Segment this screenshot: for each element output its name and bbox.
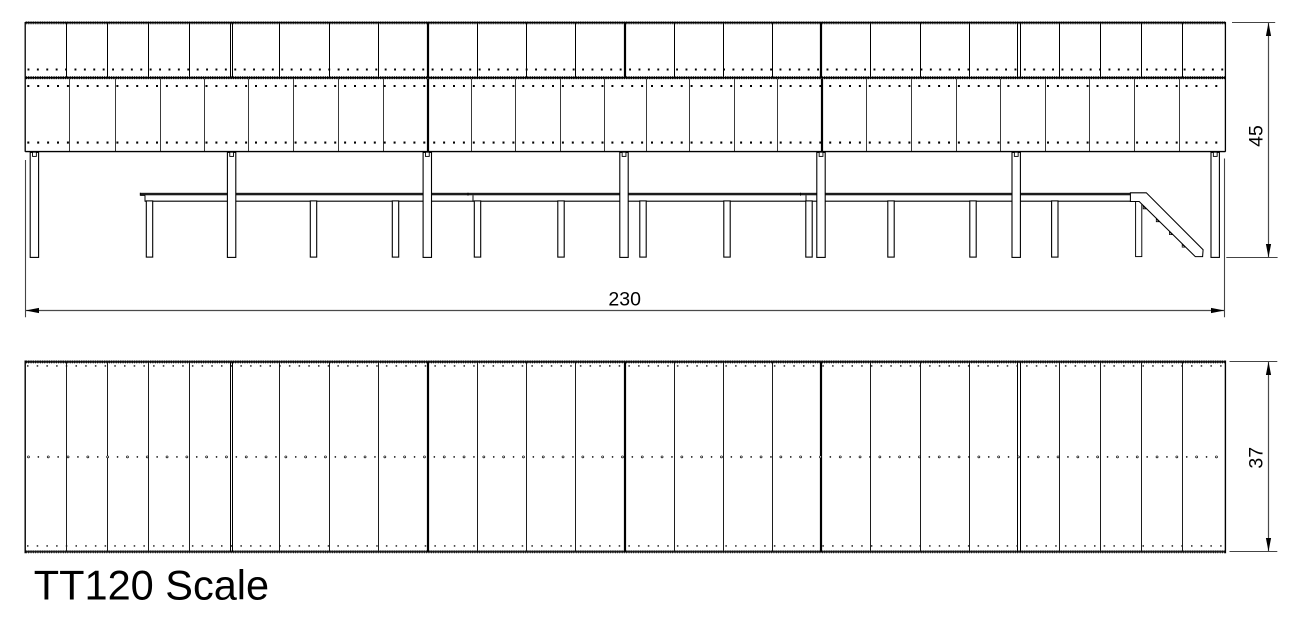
svg-text:37: 37: [1245, 447, 1267, 469]
svg-text:45: 45: [1245, 125, 1267, 147]
svg-text:TT120 Scale: TT120 Scale: [34, 561, 269, 608]
svg-text:230: 230: [608, 289, 641, 311]
